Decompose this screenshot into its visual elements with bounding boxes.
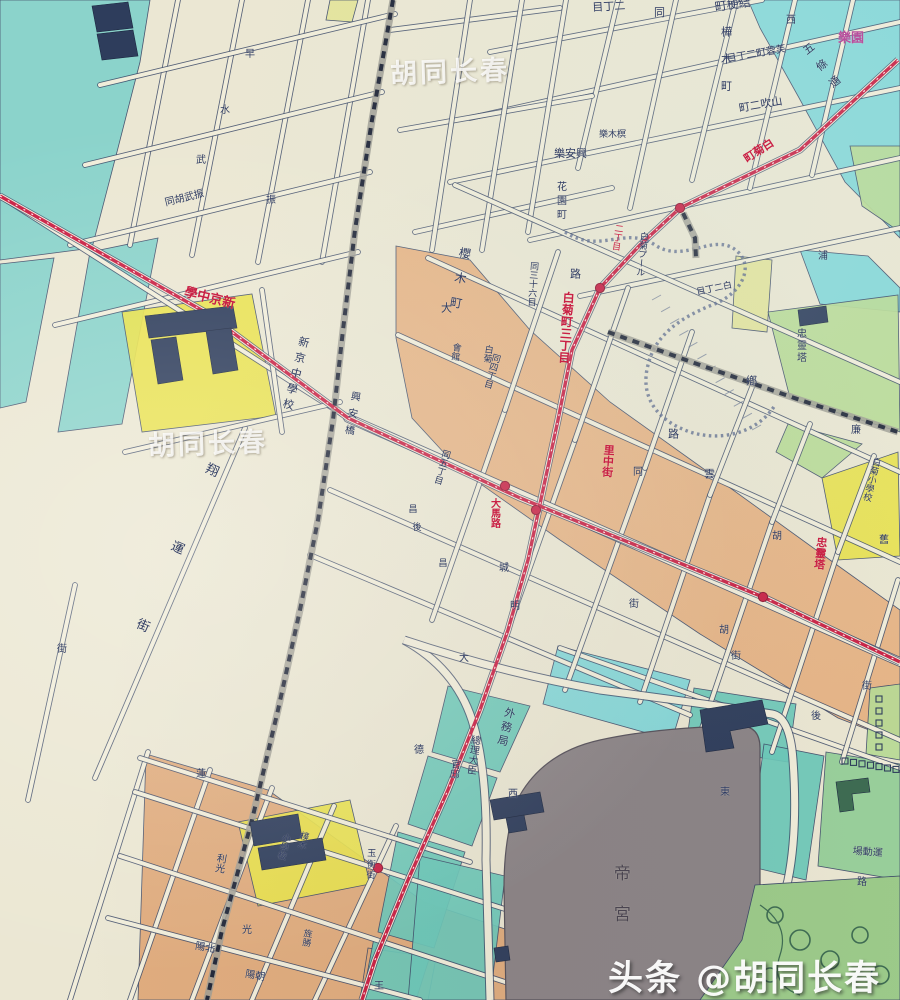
map-label: 樺木町: [720, 26, 732, 107]
watermark-text: 胡同长春: [389, 48, 510, 91]
building-icon: [97, 30, 138, 60]
map-label: 早: [242, 48, 253, 58]
map-label: 路: [854, 876, 865, 886]
map-label: 樂木榠: [599, 131, 626, 140]
historical-map-changchun: 目丁二同町梗結樺木町目丁二町蓉芙町二吹山五條通西樂園町菊白白菊プール二丁目白菊町…: [0, 0, 900, 1000]
map-label: 街: [54, 643, 65, 653]
map-label: 旌勝: [299, 928, 311, 947]
street: [70, 752, 148, 1000]
map-label: 水: [217, 104, 228, 114]
block-cyan-strip-left: [0, 258, 54, 408]
map-label: 明: [507, 600, 518, 610]
slope-hatch: [652, 295, 661, 300]
map-label: 帝宮: [610, 864, 628, 946]
street: [630, 0, 676, 208]
map-label: 西: [505, 788, 516, 798]
map-label: 玉衡街: [364, 848, 375, 881]
street: [390, 8, 560, 30]
map-label: 胡: [769, 530, 780, 540]
map-label: 路: [569, 268, 581, 279]
map-label: 忠靈塔: [813, 536, 828, 570]
watermark-text: 胡同长春: [147, 420, 268, 463]
block-right-edge-strip: [866, 684, 900, 760]
slope-hatch: [679, 330, 688, 335]
tram-station-dot: [373, 863, 382, 872]
map-label: 西: [783, 14, 794, 24]
map-label: 會館: [448, 342, 460, 361]
street: [400, 96, 592, 130]
tram-station-dot: [675, 203, 684, 212]
slope-hatch: [661, 307, 670, 312]
block-yellow-top-small: [326, 0, 358, 22]
slope-hatch: [697, 354, 706, 359]
map-label: 樂安興: [554, 148, 587, 160]
map-label: 里中街: [601, 444, 615, 478]
map-label: 廉: [848, 424, 859, 434]
map-label: 城: [496, 562, 507, 572]
map-label: 王: [371, 980, 382, 990]
map-label: 忠靈塔: [794, 328, 805, 364]
map-label: 舊: [876, 534, 887, 544]
map-label: 鄕: [745, 375, 757, 386]
street: [530, 158, 900, 240]
map-label: 光: [239, 924, 250, 934]
map-label: 昌: [406, 504, 415, 513]
map-label: 大: [440, 302, 452, 313]
map-label: 街: [859, 680, 870, 690]
map-label: 花園町: [554, 181, 565, 223]
building-icon: [92, 2, 133, 32]
map-label: 大馬路: [488, 498, 499, 528]
street: [322, 0, 368, 262]
map-label: 昌: [436, 558, 445, 567]
slope-hatch: [716, 378, 725, 383]
map-label: 後: [808, 710, 819, 720]
slope-hatch: [734, 401, 743, 406]
map-label: 官邸: [446, 758, 459, 779]
map-label: 浦: [815, 250, 826, 260]
map-label: 路: [667, 428, 679, 439]
map-label: 後: [410, 522, 419, 531]
tram-station-dot: [758, 592, 767, 601]
tram-station-dot: [531, 505, 540, 514]
map-label: 街: [626, 598, 637, 608]
map-label: 同: [654, 7, 665, 19]
map-label: 目丁二: [592, 0, 626, 13]
building-icon: [494, 946, 510, 962]
map-label: 德: [411, 744, 422, 754]
street: [28, 585, 75, 800]
map-label: 同: [630, 466, 641, 476]
map-label: 樂園: [838, 32, 864, 46]
map-label: 胡: [716, 624, 727, 634]
map-label: 蓮: [193, 768, 204, 778]
attribution-watermark: 头条 @胡同长春: [608, 950, 881, 1000]
tram-station-dot: [500, 481, 509, 490]
map-label: 場動運: [852, 847, 883, 860]
building-icon: [506, 815, 527, 833]
street: [95, 428, 245, 778]
map-label: 利光: [212, 852, 226, 874]
map-label: 雲: [703, 468, 715, 479]
map-label: 街: [728, 650, 739, 660]
map-label: 大: [456, 652, 467, 662]
map-label: 武: [193, 154, 204, 164]
map-label: 振: [263, 194, 274, 204]
map-label: 東: [717, 786, 728, 796]
tram-station-dot: [595, 283, 604, 292]
